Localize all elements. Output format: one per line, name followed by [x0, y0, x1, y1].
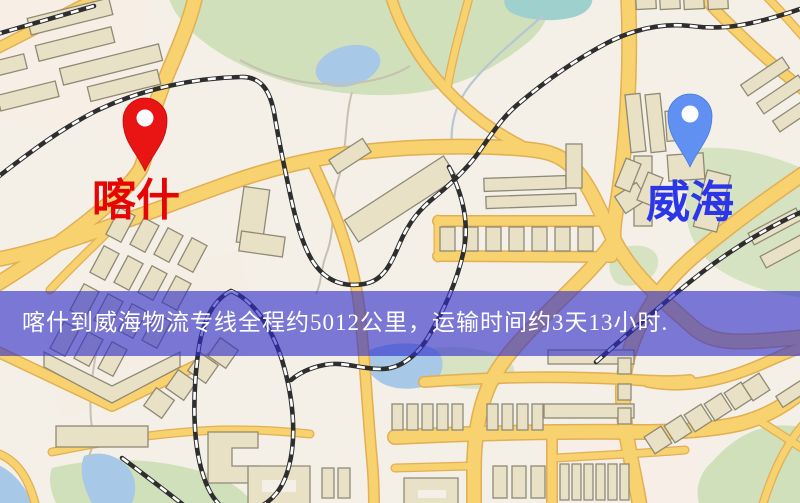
map-canvas — [0, 0, 800, 503]
route-info-text: 喀什到威海物流专线全程约5012公里，运输时间约3天13小时. — [22, 303, 668, 337]
destination-city-label: 威海 — [646, 181, 734, 225]
origin-city-label: 喀什 — [92, 179, 180, 223]
route-info-banner: 喀什到威海物流专线全程约5012公里，运输时间约3天13小时. — [0, 291, 800, 356]
origin-pin-icon — [123, 98, 167, 171]
logistics-route-map: 喀什 威海 喀什到威海物流专线全程约5012公里，运输时间约3天13小时. — [0, 0, 800, 503]
